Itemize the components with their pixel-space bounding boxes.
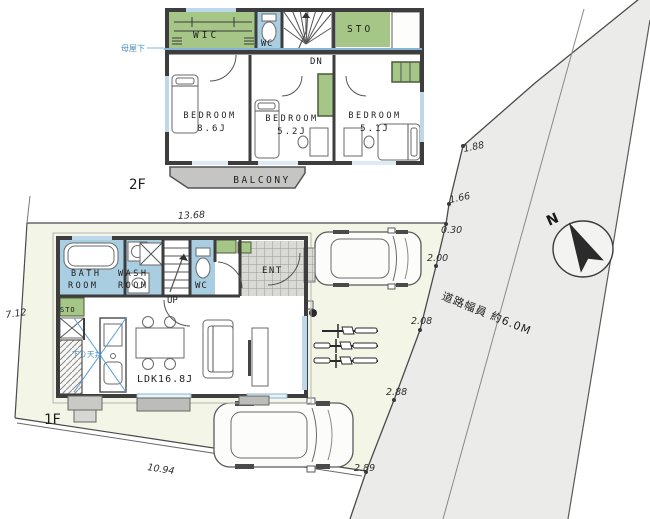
dn-label: DN bbox=[310, 57, 323, 67]
window-bedroom3-bottom bbox=[352, 161, 396, 165]
toilet-icon-1f bbox=[196, 248, 210, 278]
closet-bedroom3-right bbox=[392, 62, 420, 82]
washroom-label-1: WASH bbox=[118, 269, 148, 279]
bathroom-label-1: BATH bbox=[71, 269, 101, 279]
window-bedroom3-right bbox=[420, 92, 424, 142]
terrace-pad-2 bbox=[239, 396, 269, 405]
floor-plan-canvas: 13.68 7.12 10.94 1.88 1.66 0.30 2.00 2.0… bbox=[0, 0, 650, 519]
dim-bottom: 10.94 bbox=[147, 462, 176, 477]
wc-label-1f: WC bbox=[195, 281, 208, 291]
bedroom2-size-label: 5.2J bbox=[277, 127, 307, 137]
sofa-icon bbox=[203, 320, 233, 378]
bedroom1-name-label: BEDROOM bbox=[183, 111, 236, 121]
up-label: UP bbox=[167, 296, 178, 306]
window-ldk-bottom-1 bbox=[137, 394, 191, 398]
dim-boundary-3: 0.30 bbox=[441, 225, 462, 236]
bed-icon-bedroom1 bbox=[172, 75, 198, 133]
bathroom-label-2: ROOM bbox=[68, 281, 98, 291]
toilet-icon-2f bbox=[262, 14, 276, 42]
kitchen-counter bbox=[100, 318, 126, 392]
utility-pole-icon bbox=[309, 309, 317, 317]
window-bedroom1-bottom bbox=[192, 161, 228, 165]
dim-boundary-7: 2.89 bbox=[354, 463, 375, 474]
floor1-label: 1F bbox=[44, 412, 61, 428]
kitchen-note-label: 下り天井 bbox=[72, 349, 102, 359]
car-icon-lower bbox=[214, 398, 353, 472]
closet-bedroom23 bbox=[318, 74, 334, 116]
bicycle-icons bbox=[314, 324, 378, 368]
linen-closet-icon bbox=[140, 243, 162, 265]
bedroom2-name-label: BEDROOM bbox=[265, 114, 318, 124]
bedroom3-name-label: BEDROOM bbox=[348, 111, 401, 121]
staircase-1f bbox=[163, 240, 190, 296]
washroom-label-2: ROOM bbox=[118, 281, 148, 291]
sto-label-2f: STO bbox=[347, 24, 373, 35]
wic-label: WIC bbox=[193, 30, 219, 41]
floor2-label: 2F bbox=[129, 177, 146, 193]
car-icon-upper bbox=[315, 228, 421, 289]
dim-boundary-4: 2.00 bbox=[427, 253, 448, 264]
wc-label-2f: WC bbox=[261, 39, 273, 49]
window-wic-top bbox=[186, 8, 236, 12]
window-ldk-right bbox=[302, 316, 307, 390]
floor-plan-page: 13.68 7.12 10.94 1.88 1.66 0.30 2.00 2.0… bbox=[0, 0, 650, 519]
window-bedroom2-bottom bbox=[258, 161, 298, 165]
window-bedroom1-left bbox=[165, 76, 169, 132]
cabinet-green-1f-a bbox=[216, 240, 236, 253]
bedroom1-size-label: 8.6J bbox=[197, 124, 227, 134]
window-bath-top bbox=[72, 236, 112, 240]
moya-note-label: 母屋下 bbox=[121, 44, 145, 53]
dim-boundary-6: 2.88 bbox=[386, 387, 407, 398]
ent-label: ENT bbox=[262, 266, 283, 276]
dim-boundary-5: 2.08 bbox=[411, 316, 432, 327]
bed-icon-bedroom2 bbox=[255, 100, 279, 158]
sto-label-1f: STO bbox=[60, 306, 76, 314]
staircase-2f bbox=[282, 10, 332, 50]
dim-top: 13.68 bbox=[178, 210, 206, 222]
void-roof-area bbox=[392, 12, 420, 50]
ldk-label: LDK16.8J bbox=[137, 374, 193, 385]
bedroom3-size-label: 5.1J bbox=[360, 124, 390, 134]
second-floor-plan: 母屋下 WIC WC STO DN BEDROOM 8.6J BEDROOM 5… bbox=[121, 8, 424, 193]
site-left-extension-line bbox=[27, 196, 30, 223]
terrace-pad-1 bbox=[137, 398, 190, 411]
balcony-label: BALCONY bbox=[233, 175, 291, 186]
